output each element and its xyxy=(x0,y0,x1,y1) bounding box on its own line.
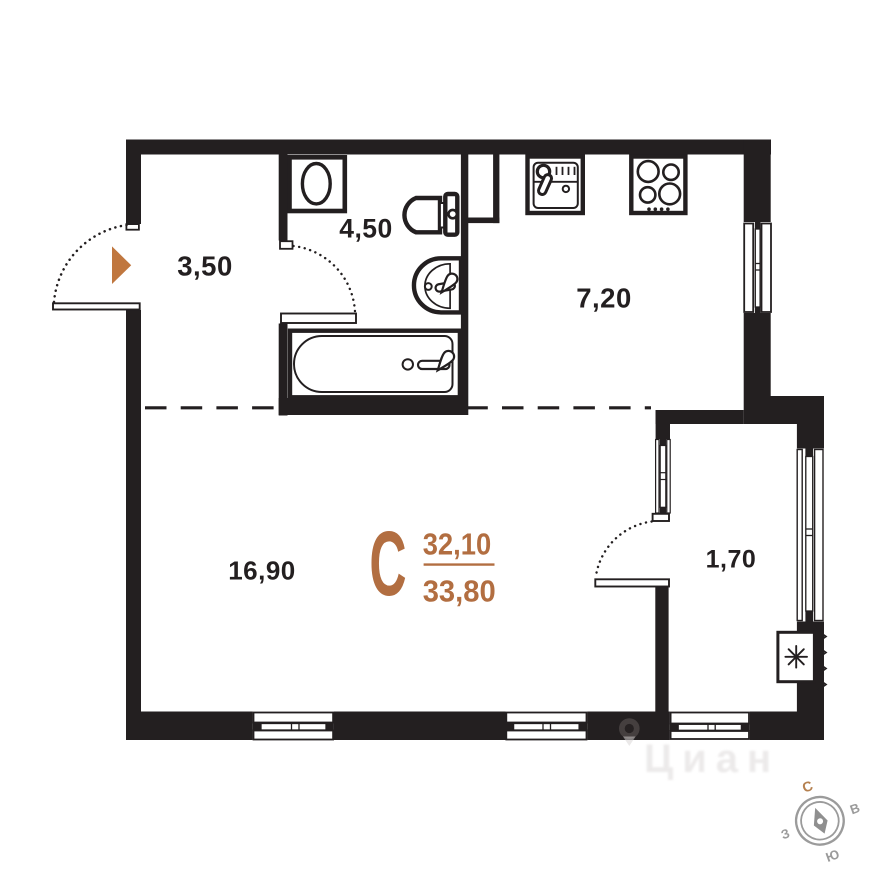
svg-text:33,80: 33,80 xyxy=(423,574,496,609)
svg-text:7,20: 7,20 xyxy=(576,283,632,314)
svg-text:3,50: 3,50 xyxy=(177,250,233,281)
svg-text:1,70: 1,70 xyxy=(706,545,757,573)
svg-text:4,50: 4,50 xyxy=(339,214,393,244)
svg-text:16,90: 16,90 xyxy=(228,556,296,586)
svg-text:C: C xyxy=(369,512,406,614)
svg-text:32,10: 32,10 xyxy=(423,527,492,562)
svg-text:Циан: Циан xyxy=(644,737,780,781)
